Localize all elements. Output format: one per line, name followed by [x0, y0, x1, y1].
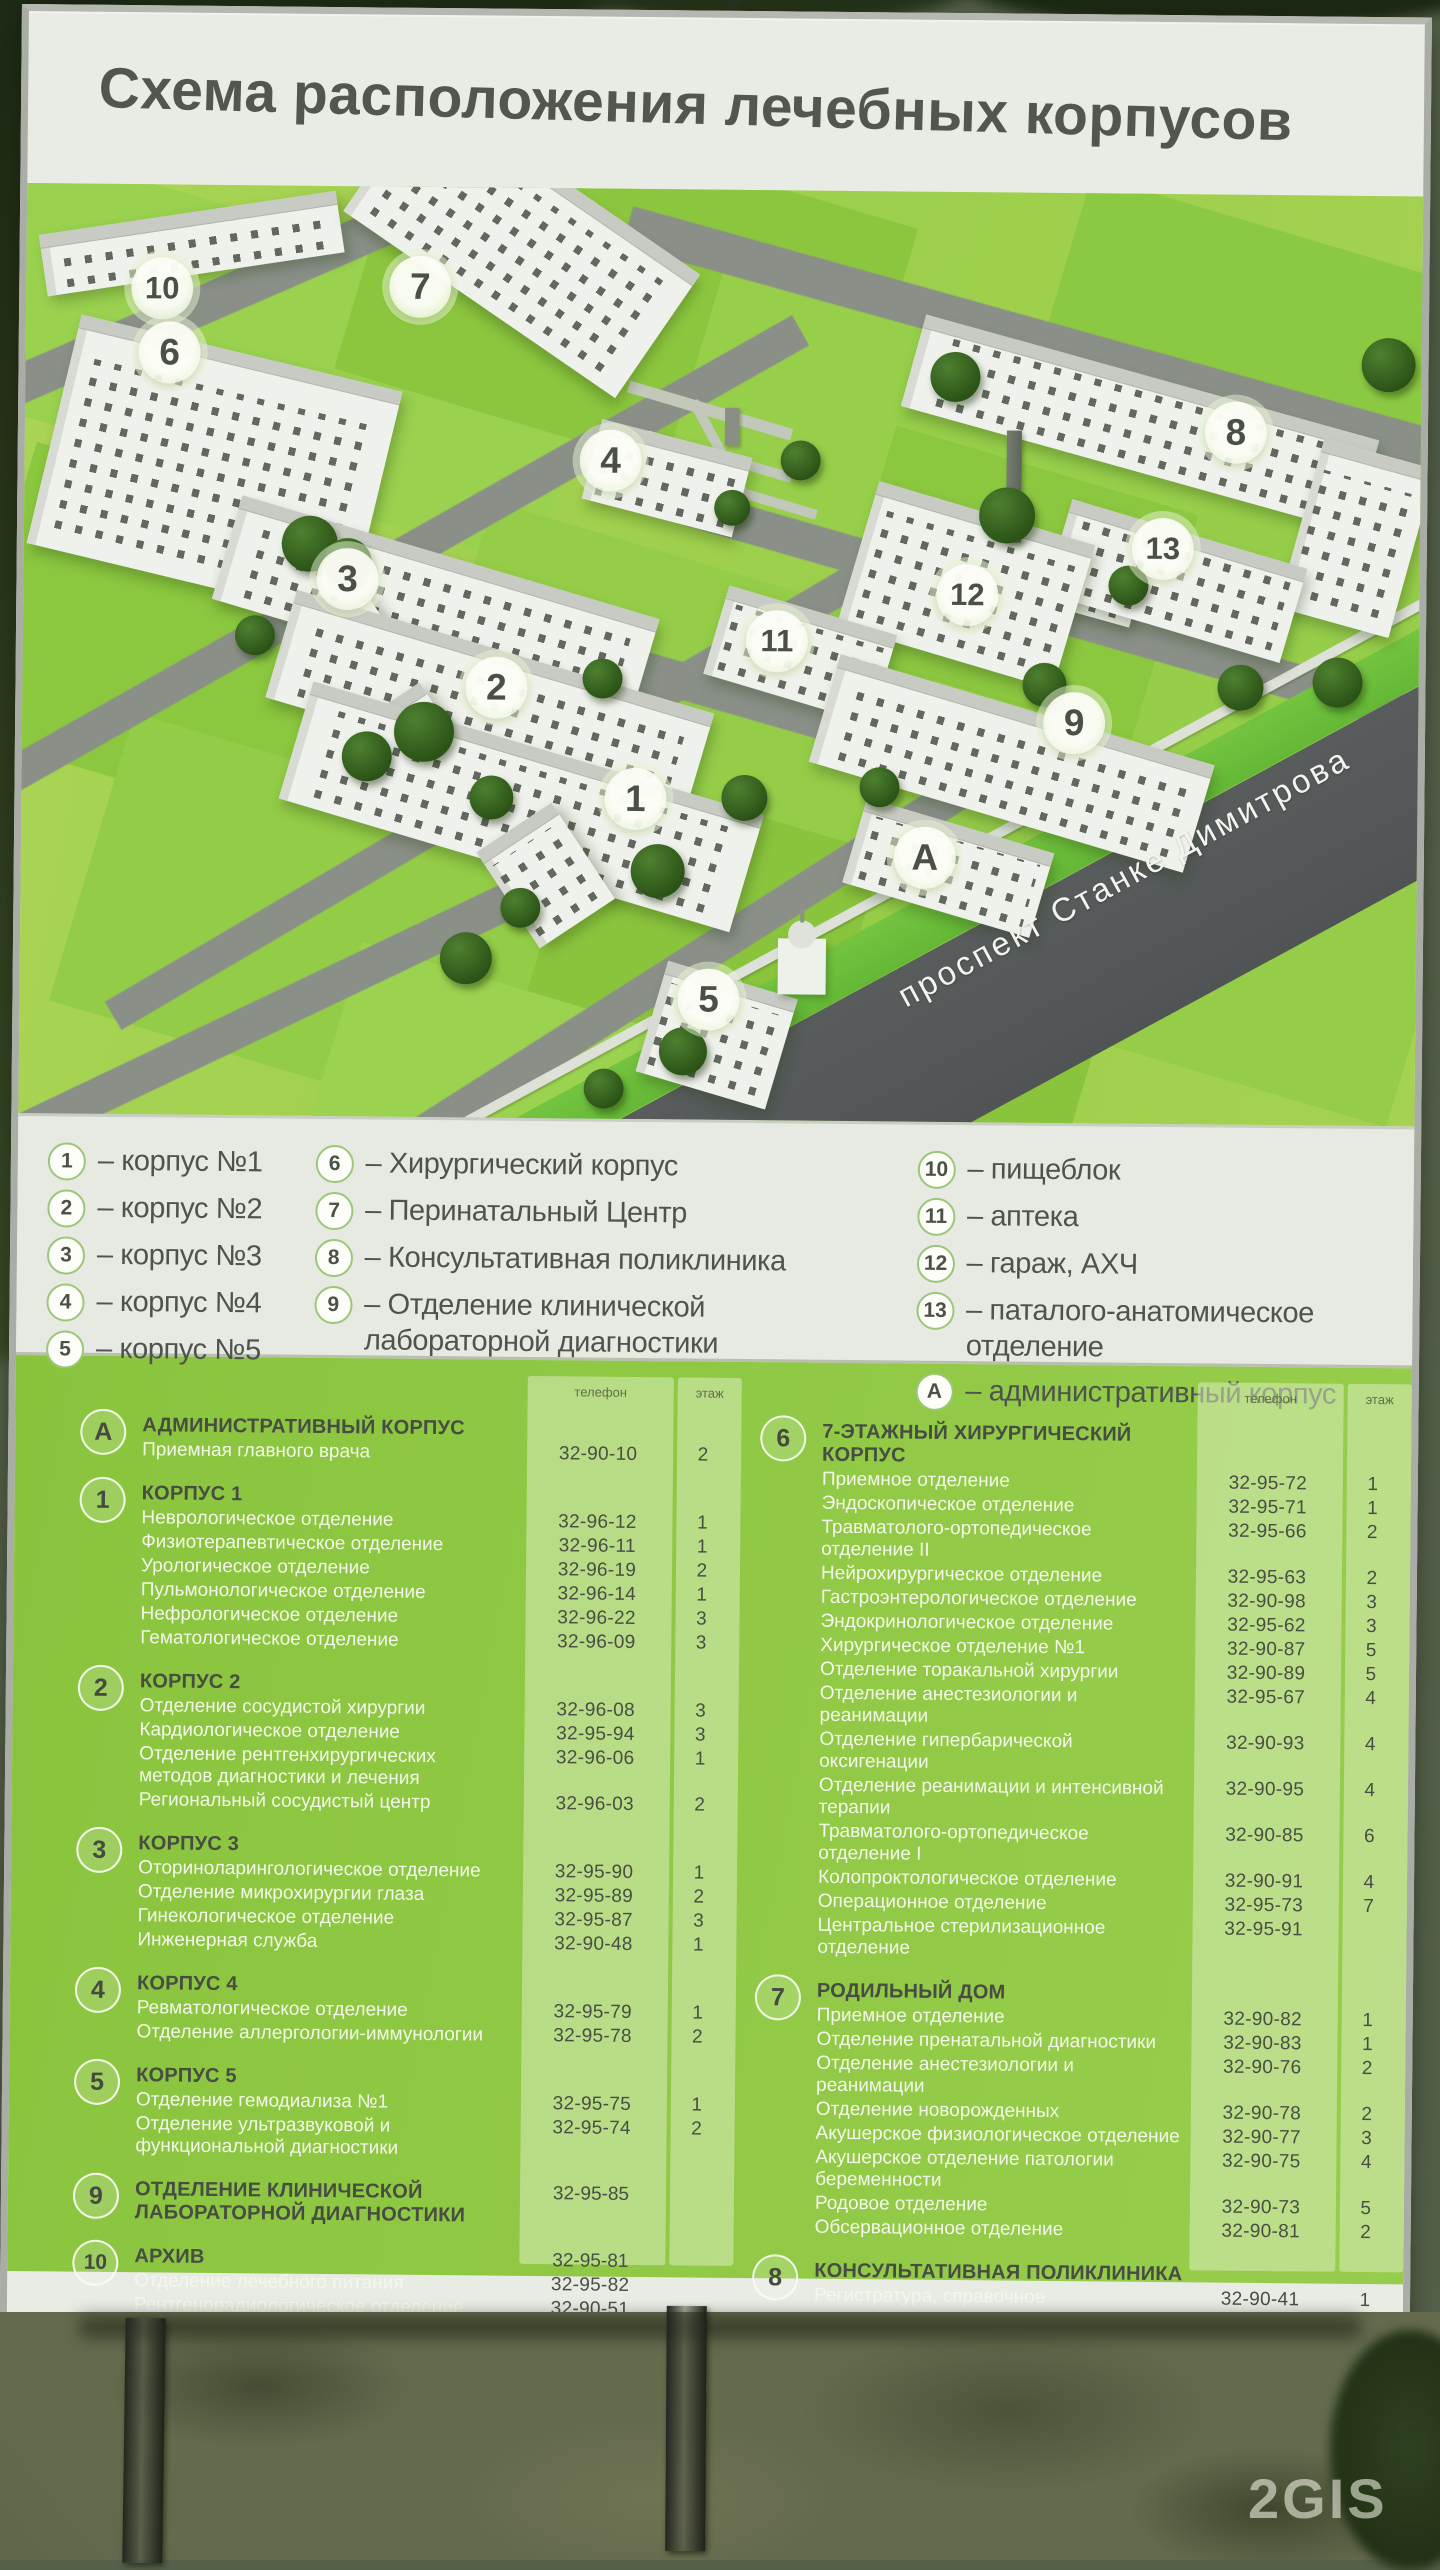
legend-item: 2– корпус №2	[47, 1189, 293, 1229]
legend-item: 8– Консультативная поликлиника	[315, 1239, 895, 1283]
department-floor: 4	[1338, 1688, 1402, 1733]
legend-number: 10	[917, 1151, 955, 1189]
department-phone: 32-95-73	[1191, 1894, 1337, 1917]
map-marker-7: 7	[389, 256, 452, 319]
department-name: Отделение гемодиализа №1	[136, 2089, 519, 2115]
department-floor: 3	[669, 1632, 733, 1655]
department-floor: 7	[1337, 1896, 1401, 1919]
section-title-floor	[666, 1977, 730, 2001]
section-А: ААДМИНИСТРАТИВНЫЙ КОРПУСПриемная главног…	[80, 1414, 735, 1467]
legend-panel: 1– корпус №12– корпус №23– корпус №34– к…	[16, 1113, 1414, 1368]
sign-post-left	[122, 2318, 165, 2564]
section-title-floor	[664, 2183, 728, 2230]
section-number: 2	[78, 1665, 124, 1711]
department-name: Урологическое отделение	[141, 1555, 524, 1581]
2gis-watermark: 2GIS	[1248, 2466, 1388, 2531]
legend-item: 3– корпус №3	[47, 1236, 293, 1276]
legend-item: 9– Отделение клинической лабораторной ди…	[314, 1286, 895, 1364]
legend-number: 8	[315, 1239, 353, 1277]
department-name: Акушерское отделение патологии беременно…	[815, 2147, 1188, 2195]
legend-label: – корпус №1	[98, 1143, 263, 1181]
department-name: Отделение рентгенхирургических методов д…	[139, 1743, 522, 1791]
legend-label: – Отделение клинической лабораторной диа…	[364, 1286, 895, 1363]
section-title: КОНСУЛЬТАТИВНАЯ ПОЛИКЛИНИКА	[814, 2260, 1187, 2287]
section-number: 3	[76, 1827, 122, 1873]
department-name: Отделение новорожденных	[816, 2099, 1189, 2125]
department-phone: 32-95-94	[522, 1723, 668, 1746]
section-title-phone	[1195, 1424, 1341, 1471]
legend-column-3: 10– пищеблок11– аптека12– гараж, АХЧ13– …	[916, 1151, 1414, 1366]
section-title-phone	[520, 1976, 666, 2000]
map-marker-10: 10	[131, 257, 194, 320]
section-title-floor	[665, 2069, 729, 2093]
tree	[582, 658, 622, 698]
department-phone: 32-96-08	[523, 1699, 669, 1722]
department-phone: 32-90-89	[1193, 1662, 1339, 1685]
department-phone: 32-95-89	[521, 1885, 667, 1908]
department-floor: 6	[1337, 1826, 1401, 1871]
legend-number: 6	[315, 1145, 353, 1183]
department-phone: 32-95-67	[1192, 1686, 1338, 1731]
department-floor: 3	[667, 1910, 731, 1933]
department-floor: 2	[1340, 1522, 1404, 1567]
legend-column-1: 1– корпус №12– корпус №23– корпус №34– к…	[46, 1142, 294, 1354]
department-floor: 2	[670, 1560, 734, 1583]
department-floor: 1	[666, 1934, 730, 1957]
section-title-phone	[519, 2068, 665, 2092]
department-floor: 1	[1341, 1474, 1405, 1497]
department-floor: 4	[1334, 2152, 1398, 2197]
department-floor: 2	[1340, 1568, 1404, 1591]
tree	[440, 932, 492, 984]
tree	[1419, 756, 1423, 800]
department-floor: 2	[665, 2026, 729, 2049]
department-name: Приемная главного врача	[142, 1439, 525, 1465]
section-title-phone	[1190, 1983, 1336, 2007]
department-phone: 32-95-74	[518, 2117, 664, 2162]
department-name: Обсервационное отделение	[815, 2217, 1188, 2243]
department-name: Отделение пренатальной диагностики	[816, 2029, 1189, 2055]
department-phone: 32-90-78	[1189, 2102, 1335, 2125]
tree	[1361, 338, 1416, 393]
section-number: 4	[75, 1967, 121, 2013]
department-phone: 32-90-10	[525, 1443, 671, 1466]
department-phone: 32-90-75	[1188, 2150, 1334, 2195]
section-title-floor	[1336, 1985, 1400, 2009]
department-phone: 32-90-41	[1187, 2288, 1333, 2311]
department-phone: 32-95-91	[1190, 1918, 1336, 1963]
department-name: Гастроэнтерологическое отделение	[821, 1587, 1194, 1613]
section-3: 3КОРПУС 3Оториноларингологическое отделе…	[75, 1832, 731, 1957]
section-title: КОРПУС 2	[140, 1670, 523, 1697]
department-phone: 32-90-77	[1188, 2126, 1334, 2149]
section-title: АРХИВ	[134, 2245, 517, 2272]
section-4: 4КОРПУС 4Ревматологическое отделение32-9…	[74, 1972, 730, 2049]
section-1: 1КОРПУС 1Неврологическое отделение32-96-…	[78, 1482, 735, 1655]
department-floor: 3	[669, 1700, 733, 1723]
department-name: Отделение реанимации и интенсивной терап…	[819, 1775, 1192, 1823]
legend-number: 3	[47, 1236, 85, 1274]
tree	[583, 1068, 623, 1108]
department-phone: 32-96-19	[524, 1559, 670, 1582]
department-floor: 3	[1334, 2128, 1398, 2151]
department-name: Эндокринологическое отделение	[820, 1611, 1193, 1637]
tree	[235, 615, 275, 655]
department-name: Приемное отделение	[822, 1469, 1195, 1495]
legend-label: – Хирургический корпус	[365, 1145, 678, 1184]
sign-post-center	[665, 2306, 707, 2551]
legend-number: 7	[315, 1192, 353, 1230]
map-marker-1: 1	[604, 768, 667, 831]
department-phone: 32-90-83	[1189, 2032, 1335, 2055]
legend-label: – корпус №5	[96, 1331, 261, 1369]
section-title-phone: 32-95-85	[518, 2182, 664, 2229]
tree	[1217, 665, 1263, 711]
map-marker-4: 4	[579, 429, 642, 492]
map-marker-А: А	[894, 826, 957, 889]
department-name: Отделение аллергологии-иммунологии	[136, 2021, 519, 2047]
tree	[630, 844, 685, 899]
sign-title: Схема расположения лечебных корпусов	[27, 11, 1424, 158]
section-10: 10АРХИВ32-95-81Отделение лечебного питан…	[72, 2245, 728, 2322]
department-name: Инженерная служба	[137, 1929, 520, 1955]
department-phone: 32-90-81	[1188, 2220, 1334, 2243]
department-floor: 5	[1339, 1664, 1403, 1687]
department-floor: 4	[1338, 1734, 1402, 1779]
section-6: 67-ЭТАЖНЫЙ ХИРУРГИЧЕСКИЙ КОРПУСПриемное …	[755, 1420, 1405, 1964]
department-name: Регистратура, справочное	[814, 2285, 1187, 2311]
legend-label: – корпус №2	[97, 1190, 262, 1228]
section-number: 10	[72, 2240, 118, 2286]
photo-of-hospital-sign: { "title": "Схема расположения лечебных …	[0, 0, 1440, 2560]
department-phone: 32-95-90	[521, 1861, 667, 1884]
legend-number: 9	[314, 1286, 352, 1324]
department-floor: 1	[670, 1584, 734, 1607]
title-band: Схема расположения лечебных корпусов	[27, 11, 1425, 196]
department-phone: 32-96-03	[522, 1793, 668, 1816]
section-title-floor	[1333, 2265, 1397, 2289]
department-phone: 32-96-06	[522, 1747, 668, 1792]
map-marker-12: 12	[936, 564, 999, 627]
department-name: Приемное отделение	[817, 2005, 1190, 2031]
department-phone: 32-95-63	[1194, 1566, 1340, 1589]
legend-number: 13	[916, 1292, 954, 1330]
campus-map: проспект Станке Димитрова 10764813312112…	[18, 183, 1423, 1126]
department-floor: 2	[1334, 2222, 1398, 2245]
tree	[394, 702, 455, 763]
department-name: Отделение анестезиологии и реанимации	[819, 1683, 1192, 1731]
tree	[979, 487, 1036, 544]
department-floor: 4	[1337, 1872, 1401, 1895]
board-shadow	[80, 2316, 1360, 2338]
department-floor: 2	[1335, 2104, 1399, 2127]
section-title-phone	[525, 1486, 671, 1510]
department-phone: 32-90-76	[1189, 2056, 1335, 2101]
section-title-phone	[523, 1674, 669, 1698]
department-phone: 32-90-98	[1194, 1590, 1340, 1613]
legend-label: – корпус №4	[96, 1284, 261, 1322]
map-marker-11: 11	[746, 610, 809, 673]
section-title: АДМИНИСТРАТИВНЫЙ КОРПУС	[142, 1414, 525, 1441]
legend-number: 11	[917, 1198, 955, 1236]
section-9: 9ОТДЕЛЕНИЕ КЛИНИЧЕСКОЙ ЛАБОРАТОРНОЙ ДИАГ…	[73, 2178, 728, 2230]
section-5: 5КОРПУС 5Отделение гемодиализа №132-95-7…	[73, 2064, 729, 2163]
section-title-phone	[1187, 2263, 1333, 2287]
department-name: Хирургическое отделение №1	[820, 1635, 1193, 1661]
department-name: Акушерское физиологическое отделение	[815, 2123, 1188, 2149]
department-phone: 32-95-82	[517, 2274, 663, 2297]
legend-item: 10– пищеблок	[917, 1151, 1414, 1194]
legend-item: 13– паталого-анатомическое отделение	[916, 1292, 1413, 1369]
section-title: РОДИЛЬНЫЙ ДОМ	[817, 1980, 1190, 2007]
department-name: Оториноларингологическое отделение	[138, 1857, 521, 1883]
department-name: Колопроктологическое отделение	[818, 1867, 1191, 1893]
section-title-phone	[525, 1418, 671, 1442]
department-phone: 32-90-48	[520, 1933, 666, 1956]
section-number: А	[80, 1409, 126, 1455]
department-phone: 32-95-72	[1195, 1472, 1341, 1495]
department-name: Пульмонологическое отделение	[141, 1579, 524, 1605]
map-marker-5: 5	[677, 968, 740, 1031]
tree	[500, 888, 540, 928]
section-number: 5	[74, 2059, 120, 2105]
section-number: 1	[79, 1477, 125, 1523]
department-floor: 3	[668, 1724, 732, 1747]
department-name: Кардиологическое отделение	[139, 1719, 522, 1745]
map-marker-2: 2	[465, 656, 528, 719]
department-name: Отделение анестезиологии и реанимации	[816, 2053, 1189, 2101]
department-floor: 3	[669, 1608, 733, 1631]
department-phone: 32-96-09	[523, 1631, 669, 1654]
department-phone: 32-96-12	[524, 1511, 670, 1534]
department-phone: 32-90-82	[1190, 2008, 1336, 2031]
section-title-floor	[663, 2250, 727, 2274]
department-floor: 2	[671, 1444, 735, 1467]
map-marker-8: 8	[1205, 401, 1268, 464]
section-title: КОРПУС 4	[137, 1972, 520, 1999]
department-floor: 4	[1338, 1780, 1402, 1825]
map-marker-3: 3	[316, 548, 379, 611]
department-name: Неврологическое отделение	[141, 1507, 524, 1533]
department-phone: 32-96-22	[523, 1607, 669, 1630]
department-name: Отделение микрохирургии глаза	[138, 1881, 521, 1907]
department-name: Региональный сосудистый центр	[139, 1789, 522, 1815]
department-floor: 3	[1339, 1616, 1403, 1639]
department-phone: 32-95-79	[520, 2001, 666, 2024]
section-number: 7	[755, 1974, 801, 2020]
section-title-floor	[671, 1419, 735, 1443]
department-phone: 32-95-75	[519, 2093, 665, 2116]
legend-label: – пищеблок	[967, 1151, 1120, 1188]
department-floor: 5	[1339, 1640, 1403, 1663]
section-title: КОРПУС 1	[142, 1482, 525, 1509]
tree	[780, 440, 820, 480]
department-name: Ревматологическое отделение	[137, 1997, 520, 2023]
department-floor: 3	[1340, 1592, 1404, 1615]
department-phone: 32-95-62	[1193, 1614, 1339, 1637]
department-name: Гинекологическое отделение	[138, 1905, 521, 1931]
section-2: 2КОРПУС 2Отделение сосудистой хирургии32…	[77, 1670, 733, 1817]
details-column-right: телефон этаж 67-ЭТАЖНЫЙ ХИРУРГИЧЕСКИЙ КО…	[752, 1378, 1406, 2284]
tree	[1312, 657, 1362, 707]
department-floor: 1	[667, 1862, 731, 1885]
legend-label: – аптека	[967, 1198, 1079, 1235]
legend-label: – гараж, АХЧ	[966, 1245, 1138, 1283]
department-floor: 2	[664, 2118, 728, 2163]
legend-number: 5	[46, 1330, 84, 1368]
legend-number: 4	[46, 1283, 84, 1321]
sections: ААДМИНИСТРАТИВНЫЙ КОРПУСПриемная главног…	[72, 1372, 736, 2322]
department-floor: 1	[1341, 1498, 1405, 1521]
department-floor: 1	[665, 2094, 729, 2117]
department-name: Гематологическое отделение	[140, 1627, 523, 1653]
department-name: Эндоскопическое отделение	[822, 1493, 1195, 1519]
legend-column-2: 6– Хирургический корпус7– Перинатальный …	[314, 1145, 896, 1361]
section-number: 6	[760, 1415, 806, 1461]
garden-monument	[725, 408, 739, 446]
section-7: 7РОДИЛЬНЫЙ ДОМПриемное отделение32-90-82…	[753, 1979, 1400, 2244]
map-marker-9: 9	[1043, 692, 1106, 755]
department-phone: 32-90-85	[1191, 1824, 1337, 1869]
details-column-left: телефон этаж ААДМИНИСТРАТИВНЫЙ КОРПУСПри…	[72, 1372, 736, 2278]
legend-item: 5– корпус №5	[46, 1330, 292, 1370]
legend-item: 12– гараж, АХЧ	[916, 1245, 1413, 1288]
tree	[659, 1027, 707, 1075]
section-title: 7-ЭТАЖНЫЙ ХИРУРГИЧЕСКИЙ КОРПУС	[822, 1421, 1195, 1471]
section-title-floor	[667, 1837, 731, 1861]
legend-item: 7– Перинатальный Центр	[315, 1192, 895, 1236]
department-phone: 32-96-11	[524, 1535, 670, 1558]
department-floor: 2	[667, 1886, 731, 1909]
department-name: Нейрохирургическое отделение	[821, 1563, 1194, 1589]
department-name: Травматолого-ортопедическое отделение I	[818, 1821, 1191, 1869]
sections: 67-ЭТАЖНЫЙ ХИРУРГИЧЕСКИЙ КОРПУСПриемное …	[751, 1378, 1406, 2408]
section-number: 9	[73, 2173, 119, 2219]
department-phone: 32-95-66	[1194, 1520, 1340, 1565]
department-floor: 1	[666, 2002, 730, 2025]
legend-label: – корпус №3	[97, 1237, 262, 1275]
department-name: Нефрологическое отделение	[140, 1603, 523, 1629]
department-name: Физиотерапевтическое отделение	[141, 1531, 524, 1557]
department-name: Отделение гипербарической оксигенации	[819, 1729, 1192, 1777]
tree	[714, 490, 750, 526]
department-phone: 32-95-71	[1195, 1496, 1341, 1519]
department-floor: 5	[1334, 2198, 1398, 2221]
section-number: 8	[752, 2254, 798, 2300]
section-title-floor	[1341, 1426, 1405, 1473]
legend-number: 2	[47, 1189, 85, 1227]
legend-label: – Консультативная поликлиника	[365, 1239, 786, 1279]
section-title-floor	[671, 1487, 735, 1511]
department-floor	[663, 2275, 727, 2298]
department-floor: 1	[670, 1512, 734, 1535]
legend-item: 4– корпус №4	[46, 1283, 292, 1323]
department-phone: 32-90-91	[1191, 1870, 1337, 1893]
department-floor: 1	[668, 1748, 732, 1793]
department-name: Отделение лечебного питания	[134, 2270, 517, 2296]
department-name: Отделение ультразвуковой и функционально…	[135, 2113, 518, 2161]
legend-label: – Перинатальный Центр	[365, 1192, 687, 1231]
department-floor: 1	[1333, 2290, 1397, 2313]
section-title-phone	[521, 1836, 667, 1860]
legend-item: 11– аптека	[917, 1198, 1414, 1241]
legend-label: – паталого-анатомическое отделение	[966, 1292, 1413, 1368]
department-phone: 32-90-87	[1193, 1638, 1339, 1661]
department-phone: 32-95-87	[521, 1909, 667, 1932]
department-floor: 2	[1335, 2058, 1399, 2103]
legend-item: 6– Хирургический корпус	[315, 1145, 895, 1189]
section-title: КОРПУС 3	[138, 1832, 521, 1859]
department-phone: 32-90-73	[1188, 2196, 1334, 2219]
department-phone: 32-96-14	[524, 1583, 670, 1606]
tree	[721, 775, 767, 821]
department-name: Отделение сосудистой хирургии	[140, 1695, 523, 1721]
legend-item: 1– корпус №1	[48, 1142, 294, 1182]
department-name: Операционное отделение	[818, 1891, 1191, 1917]
sign-board: Схема расположения лечебных корпусов про…	[0, 4, 1432, 2349]
department-floor: 1	[1336, 2010, 1400, 2033]
department-name: Отделение торакальной хирургии	[820, 1659, 1193, 1685]
details-panel: телефон этаж ААДМИНИСТРАТИВНЫЙ КОРПУСПри…	[7, 1355, 1412, 2284]
section-title-phone: 32-95-81	[517, 2249, 663, 2273]
tree	[859, 767, 899, 807]
department-floor	[1336, 1920, 1400, 1965]
department-phone: 32-90-95	[1192, 1778, 1338, 1823]
tree	[342, 731, 392, 781]
tree	[930, 352, 980, 402]
department-name: Родовое отделение	[815, 2193, 1188, 2219]
section-title: ОТДЕЛЕНИЕ КЛИНИЧЕСКОЙ ЛАБОРАТОРНОЙ ДИАГН…	[135, 2178, 518, 2228]
department-name: Центральное стерилизационное отделение	[817, 1915, 1190, 1963]
map-marker-13: 13	[1132, 518, 1195, 581]
department-floor: 1	[1335, 2034, 1399, 2057]
department-phone: 32-90-93	[1192, 1732, 1338, 1777]
chapel-building	[778, 938, 827, 994]
department-floor: 2	[668, 1794, 732, 1817]
tree	[469, 775, 513, 819]
legend-number: 12	[916, 1245, 954, 1283]
department-phone: 32-95-78	[519, 2025, 665, 2048]
department-name: Травматолого-ортопедическое отделение II	[821, 1517, 1194, 1565]
grass-ground	[0, 2312, 1440, 2560]
section-title-floor	[669, 1675, 733, 1699]
legend-number: 1	[48, 1142, 86, 1180]
department-floor: 1	[670, 1536, 734, 1559]
map-marker-6: 6	[138, 321, 201, 384]
section-title: КОРПУС 5	[136, 2064, 519, 2091]
